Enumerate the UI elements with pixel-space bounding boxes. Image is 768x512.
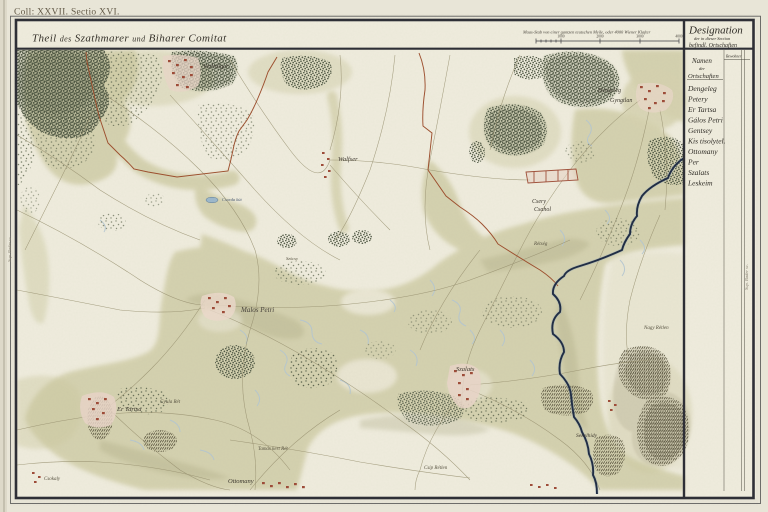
svg-text:Designation: Designation: [688, 25, 743, 37]
svg-text:Sup. Bader sc.: Sup. Bader sc.: [7, 236, 12, 262]
svg-text:Bewohner: Bewohner: [726, 55, 742, 59]
svg-text:Coll: XXVII. Sectio XVI.: Coll: XXVII. Sectio XVI.: [14, 8, 120, 18]
svg-text:Ortschaften: Ortschaften: [688, 73, 719, 80]
svg-text:Per: Per: [687, 158, 699, 167]
svg-text:der: der: [699, 66, 705, 71]
svg-text:befindl. Ortschaften: befindl. Ortschaften: [689, 42, 737, 49]
svg-text:Sup. Bader sc.: Sup. Bader sc.: [744, 264, 749, 290]
svg-text:2000: 2000: [596, 35, 603, 39]
svg-text:3000: 3000: [636, 35, 643, 39]
svg-text:Petery: Petery: [687, 95, 708, 104]
svg-text:Ottomany: Ottomany: [688, 147, 718, 156]
svg-text:Gentsey: Gentsey: [688, 126, 713, 135]
svg-text:Theil des Szathmarer und Bihar: Theil des Szathmarer und Biharer Comitat: [32, 33, 227, 45]
svg-text:Er Tartsa: Er Tartsa: [687, 105, 717, 114]
svg-text:Namen: Namen: [691, 57, 712, 65]
svg-text:1000: 1000: [557, 35, 564, 39]
svg-text:4000: 4000: [675, 35, 682, 39]
svg-text:Leskeim: Leskeim: [687, 179, 713, 188]
svg-text:Szalats: Szalats: [688, 168, 709, 177]
svg-text:Dengeleg: Dengeleg: [687, 84, 717, 93]
svg-text:Gálos Petri: Gálos Petri: [688, 116, 723, 125]
svg-text:Kis tisolytel.: Kis tisolytel.: [687, 137, 726, 146]
svg-text:der in dieser Section: der in dieser Section: [694, 36, 731, 41]
